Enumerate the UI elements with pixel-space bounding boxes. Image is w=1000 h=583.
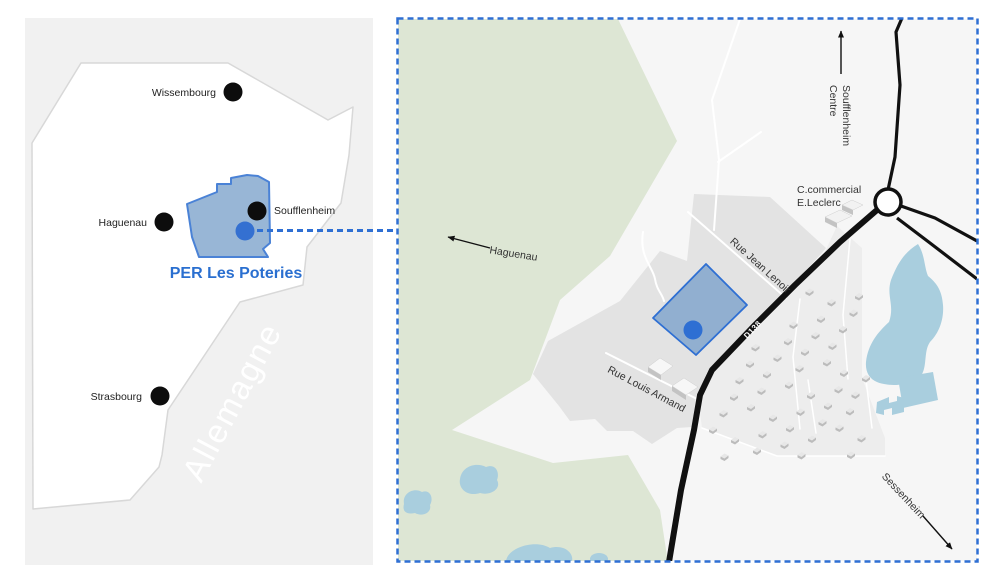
soufflenheim-dot bbox=[248, 202, 267, 221]
strasbourg-dot bbox=[151, 387, 170, 406]
overview-map-panel: Allemagne Wissembourg Haguenau Soufflenh… bbox=[25, 18, 373, 565]
detail-map-panel: Soufflenheim Centre C.commercial E.Lecle… bbox=[396, 17, 979, 563]
site-marker-overview bbox=[236, 222, 255, 241]
soufflenheim-centre-label-1: Soufflenheim bbox=[840, 85, 852, 146]
leclerc-label-2: E.Leclerc bbox=[797, 197, 841, 209]
detail-map-svg: Soufflenheim Centre C.commercial E.Lecle… bbox=[396, 17, 979, 563]
haguenau-dot bbox=[155, 213, 174, 232]
leclerc-label-1: C.commercial bbox=[797, 184, 861, 196]
zoom-connector-line bbox=[257, 229, 396, 232]
region-title: PER Les Poteries bbox=[170, 265, 303, 282]
roundabout bbox=[875, 189, 901, 215]
soufflenheim-centre-label-2: Centre bbox=[827, 85, 839, 117]
wissembourg-dot bbox=[224, 83, 243, 102]
soufflenheim-label: Soufflenheim bbox=[274, 205, 335, 217]
pond-1 bbox=[460, 465, 498, 494]
figure-canvas: Allemagne Wissembourg Haguenau Soufflenh… bbox=[0, 0, 1000, 583]
pond-2 bbox=[403, 490, 431, 514]
overview-map-svg: Allemagne Wissembourg Haguenau Soufflenh… bbox=[25, 18, 373, 565]
strasbourg-label: Strasbourg bbox=[91, 391, 143, 403]
wissembourg-label: Wissembourg bbox=[152, 87, 216, 99]
site-marker-detail bbox=[684, 321, 703, 340]
haguenau-label: Haguenau bbox=[99, 217, 148, 229]
